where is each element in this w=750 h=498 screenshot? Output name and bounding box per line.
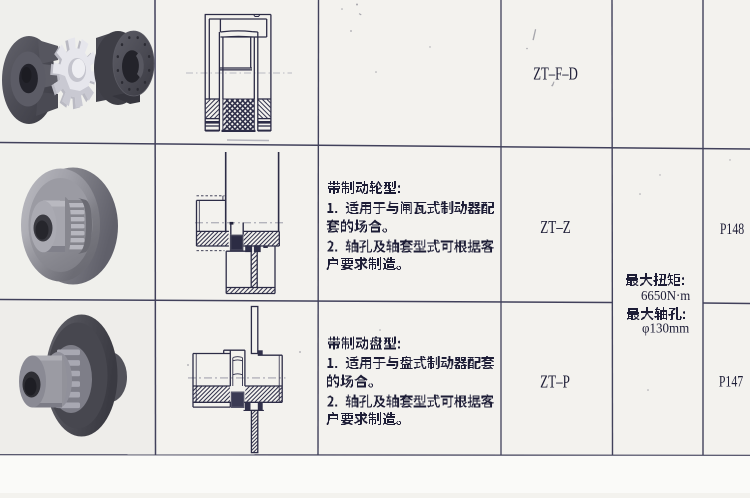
svg-text:ZT–F–D: ZT–F–D (533, 64, 578, 84)
svg-text:ZT–Z: ZT–Z (540, 218, 571, 238)
svg-text:ZT–P: ZT–P (540, 372, 570, 392)
svg-text:φ130mm: φ130mm (642, 320, 690, 336)
svg-text:P148: P148 (720, 220, 744, 237)
svg-text:P147: P147 (719, 373, 743, 390)
svg-text:6650N·m: 6650N·m (641, 287, 691, 303)
